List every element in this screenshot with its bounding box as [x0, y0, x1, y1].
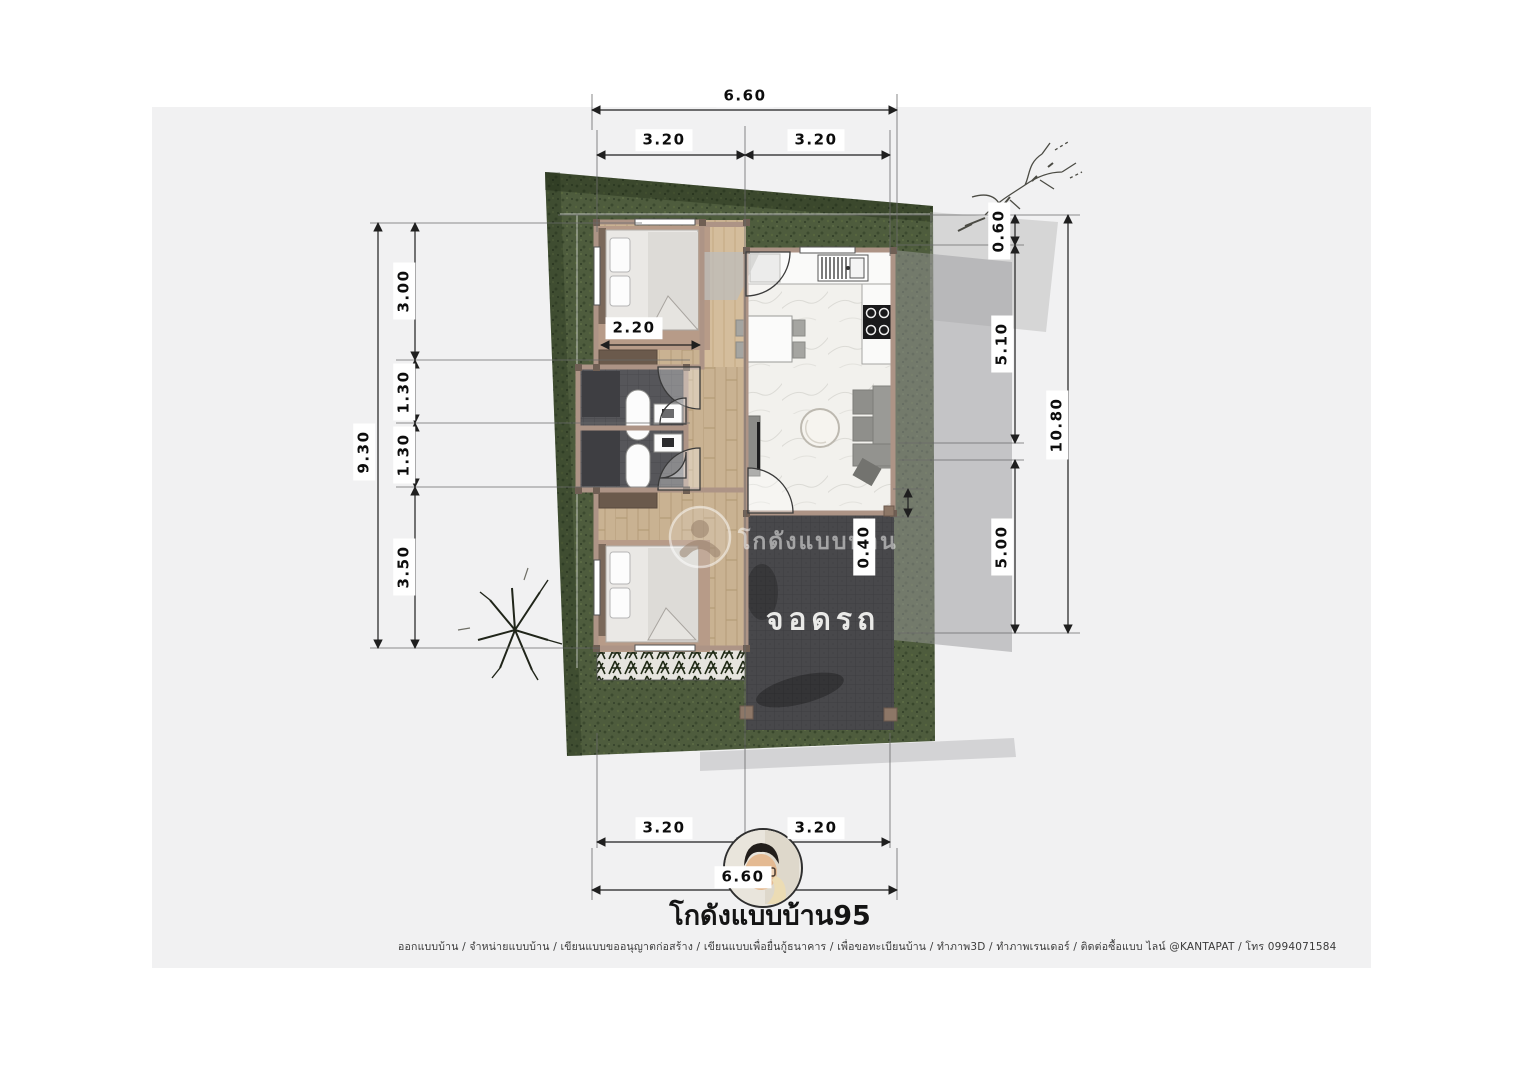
dim-left-seg4: 3.50 — [393, 538, 415, 595]
dim-bottom-total: 6.60 — [714, 866, 771, 888]
footer-services-text: ออกแบบบ้าน / จำหน่ายแบบบ้าน / เขียนแบบขอ… — [398, 938, 1337, 955]
watermark-logo — [670, 507, 730, 567]
floor-plan-page: 6.60 3.20 3.20 2.20 9.30 3.00 1.30 1.30 … — [0, 0, 1522, 1076]
dim-right-seg2: 5.10 — [991, 315, 1013, 372]
dim-left-seg2: 1.30 — [393, 363, 415, 420]
dim-left-seg1: 3.00 — [393, 262, 415, 319]
dim-right-total: 10.80 — [1046, 391, 1068, 460]
plant-sketch-bottom-left — [458, 568, 562, 680]
dim-left-total: 9.30 — [353, 423, 375, 480]
dim-top-total: 6.60 — [716, 85, 773, 107]
dim-bottom-left: 3.20 — [635, 817, 692, 839]
dim-right-seg3: 5.00 — [991, 518, 1013, 575]
dim-carport-offset: 0.40 — [853, 518, 875, 575]
dim-bedroom-width: 2.20 — [605, 317, 662, 339]
dim-right-seg1: 0.60 — [988, 202, 1010, 259]
page-title: โกดังแบบบ้าน95 — [669, 894, 871, 937]
dim-top-left: 3.20 — [635, 129, 692, 151]
dim-top-right: 3.20 — [787, 129, 844, 151]
dim-bottom-right: 3.20 — [787, 817, 844, 839]
parking-label: จอดรถ — [766, 597, 880, 644]
dim-left-seg3: 1.30 — [393, 426, 415, 483]
